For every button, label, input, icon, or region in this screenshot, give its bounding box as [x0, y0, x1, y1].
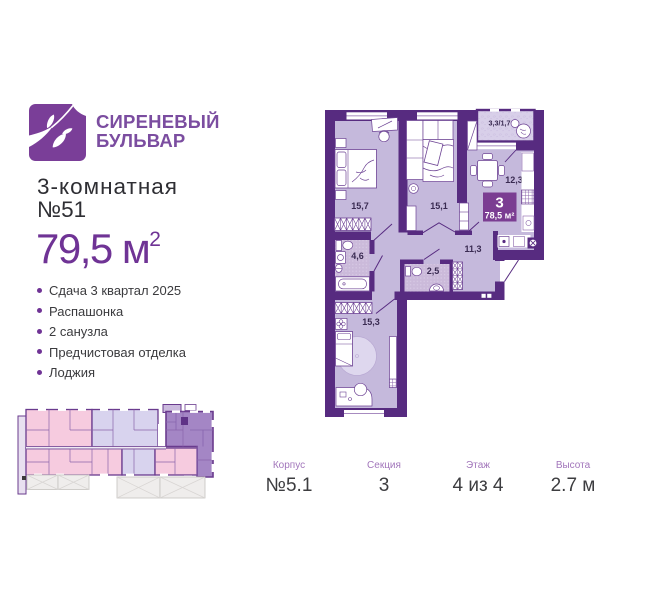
svg-text:3,3/1,7: 3,3/1,7	[489, 119, 511, 128]
svg-text:3: 3	[495, 195, 503, 212]
svg-text:11,3: 11,3	[464, 244, 481, 254]
svg-text:12,3: 12,3	[505, 175, 523, 185]
svg-text:4,6: 4,6	[351, 251, 364, 261]
svg-text:15,3: 15,3	[362, 317, 380, 327]
svg-text:2,5: 2,5	[427, 266, 440, 276]
svg-text:78,5 м²: 78,5 м²	[485, 211, 515, 221]
svg-text:15,7: 15,7	[351, 201, 369, 211]
svg-text:15,1: 15,1	[430, 201, 448, 211]
